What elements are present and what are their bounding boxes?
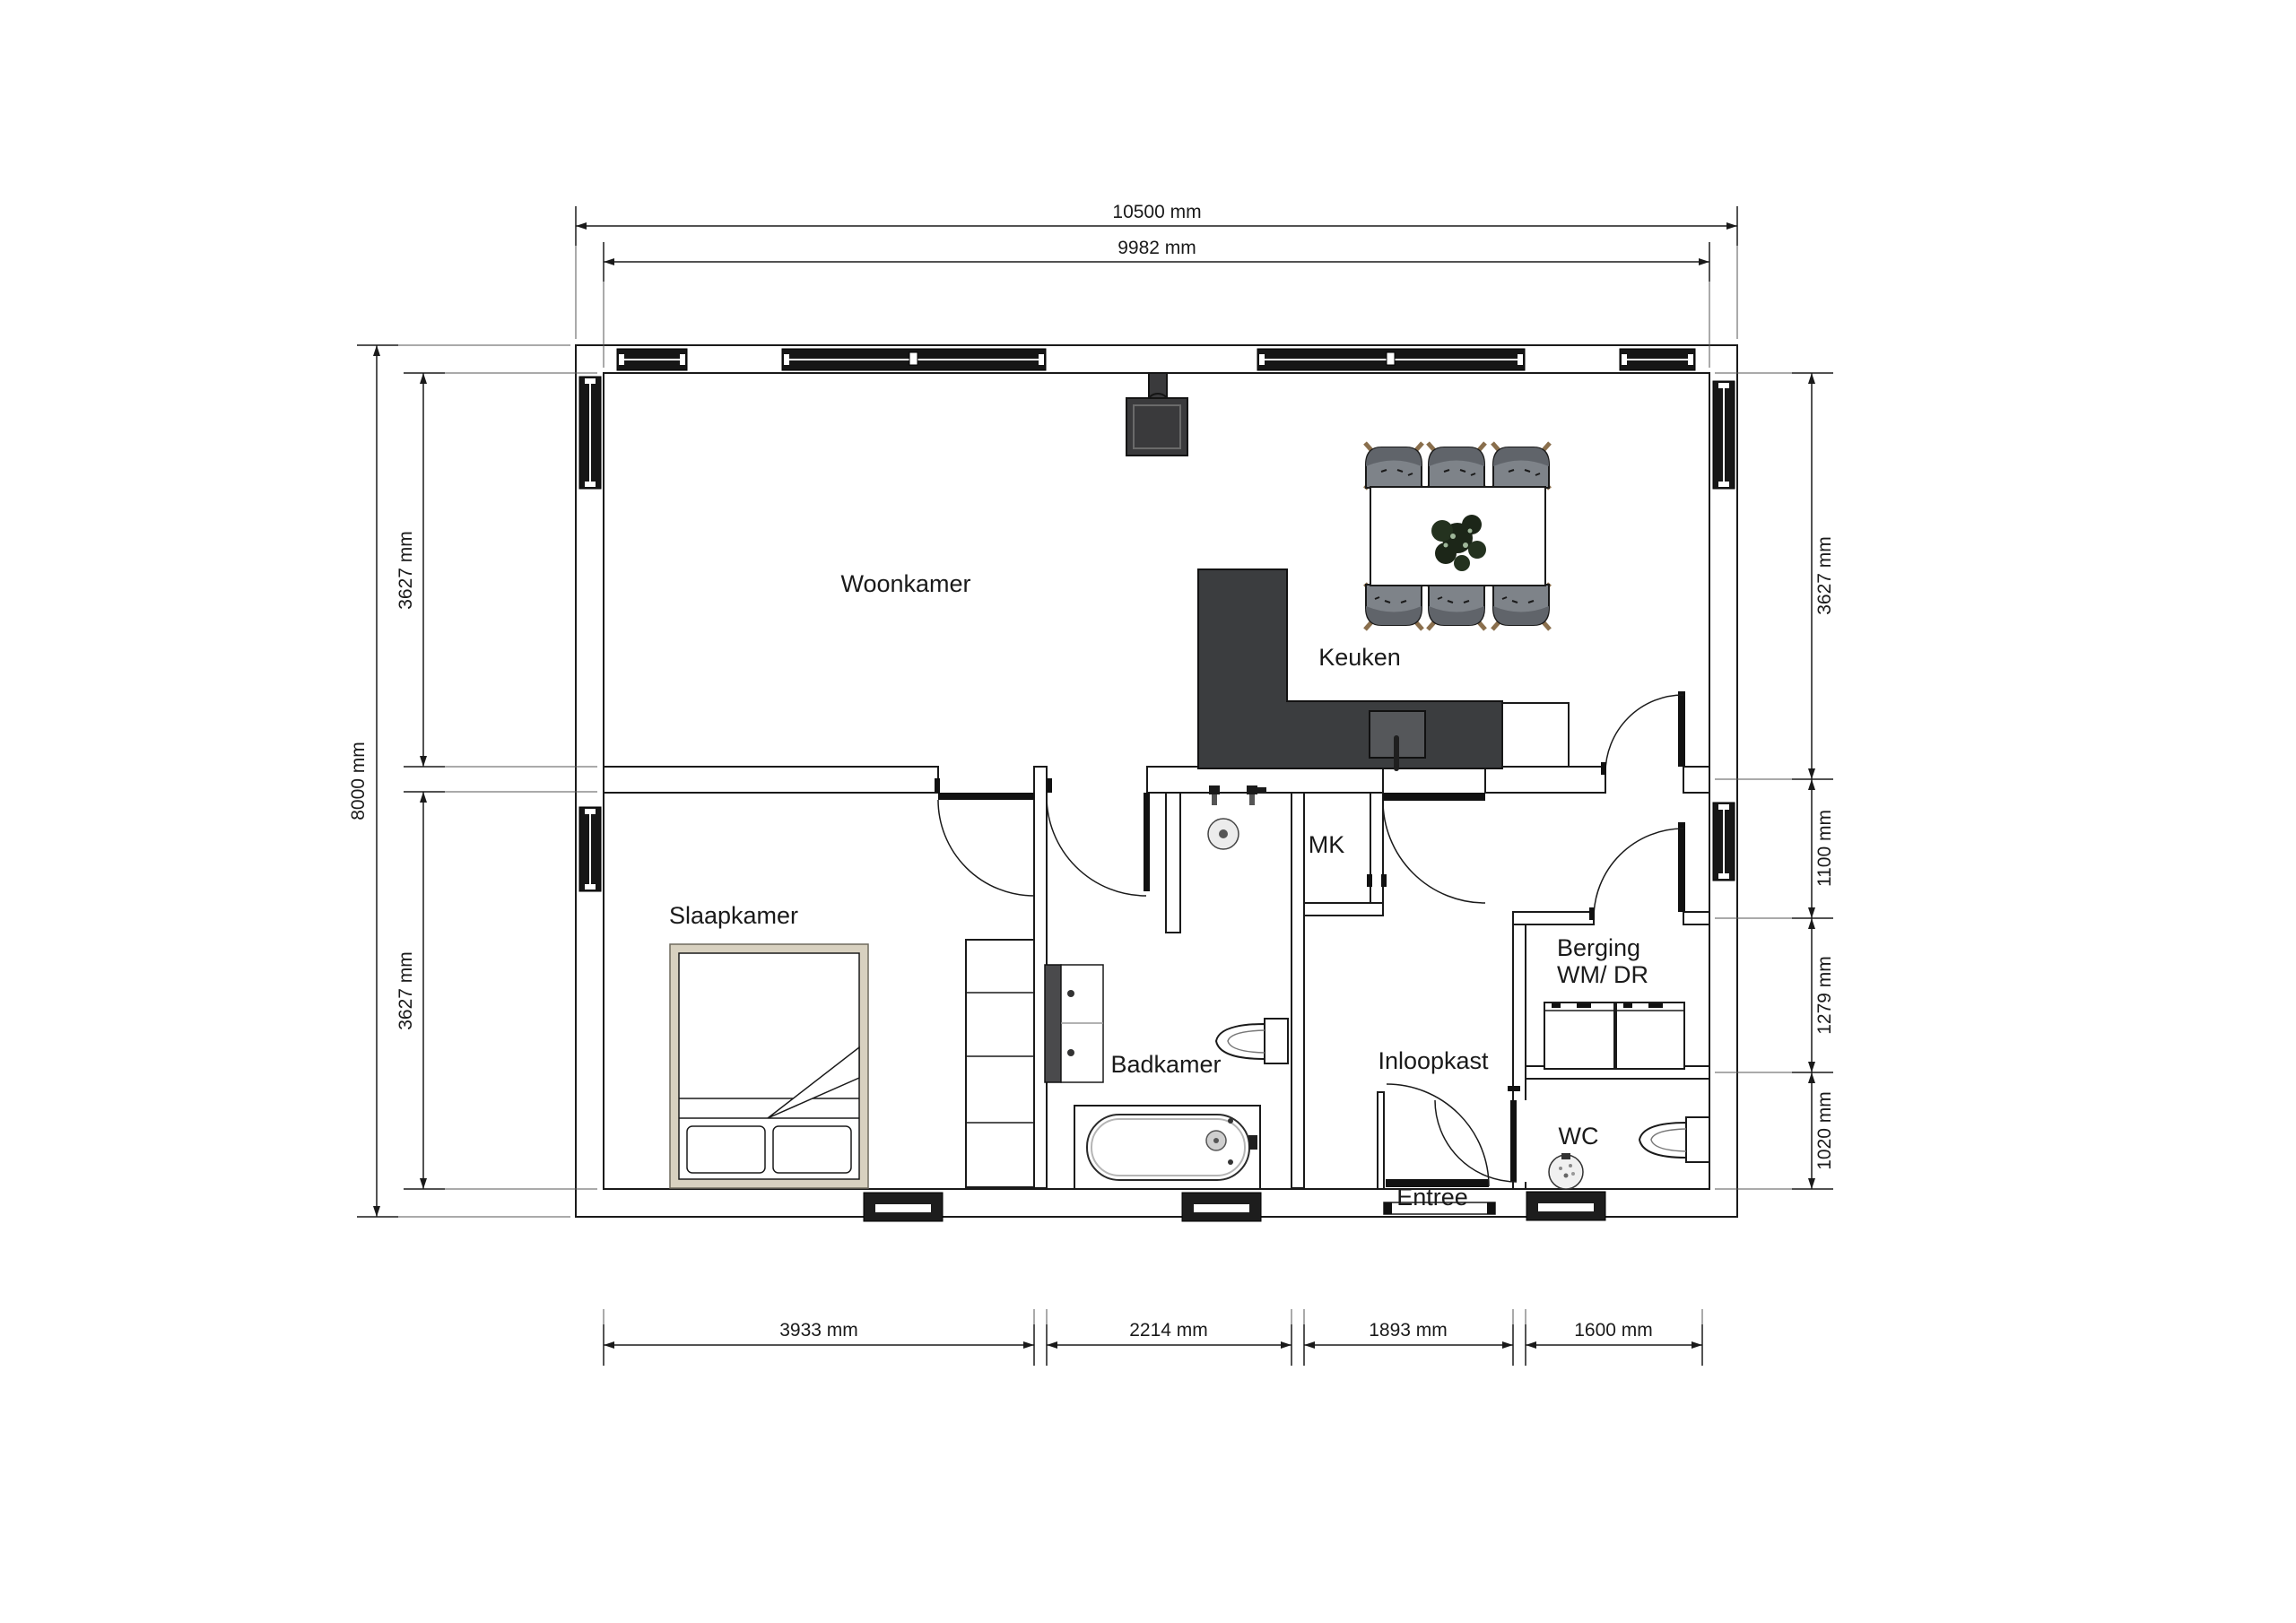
kitchen-faucet-icon xyxy=(1394,735,1399,771)
bathtub xyxy=(1074,1106,1260,1189)
room-label-entree: Entree xyxy=(1396,1184,1468,1211)
dim-bottom-badkamer: 2214 mm xyxy=(1129,1320,1208,1341)
dim-right-upper: 3627 mm xyxy=(1814,536,1835,615)
wall-mk-right xyxy=(1370,793,1383,903)
berging-fixtures xyxy=(1544,1002,1684,1069)
dim-left-lower: 3627 mm xyxy=(396,951,416,1030)
window-top-1 xyxy=(617,349,687,370)
dim-bottom-inloopkast: 1893 mm xyxy=(1369,1320,1448,1341)
window-left-1 xyxy=(579,377,601,489)
dim-top-inner: 9982 mm xyxy=(1118,238,1196,258)
dim-bottom-berging: 1600 mm xyxy=(1574,1320,1653,1341)
mid-wall-right xyxy=(1485,767,1605,793)
room-label-berging-line1: Berging xyxy=(1557,934,1640,961)
bed xyxy=(670,944,868,1188)
room-label-slaapkamer: Slaapkamer xyxy=(669,902,798,929)
window-top-2 xyxy=(782,349,1046,370)
room-label-wc: WC xyxy=(1559,1123,1599,1150)
wall-mk-bottom xyxy=(1304,903,1383,916)
wardrobe xyxy=(966,940,1034,1187)
wall-berging-top-stub xyxy=(1683,912,1709,924)
dim-top-outer: 10500 mm xyxy=(1112,202,1201,222)
room-label-inloopkast: Inloopkast xyxy=(1378,1047,1489,1074)
shower-partition xyxy=(1166,793,1180,933)
window-top-4 xyxy=(1620,349,1695,370)
room-label-badkamer: Badkamer xyxy=(1110,1051,1221,1078)
pillow xyxy=(773,1126,851,1173)
wall-entree-stub xyxy=(1378,1092,1384,1189)
wall-berging-top xyxy=(1513,912,1594,924)
kitchen-cabinet xyxy=(1502,703,1569,767)
room-label-berging-line2: WM/ DR xyxy=(1557,961,1648,988)
mid-wall-left xyxy=(604,767,938,793)
floor-plan-drawing: Woonkamer Keuken Slaapkamer Badkamer MK … xyxy=(0,0,2296,1623)
dim-bottom-slaapkamer: 3933 mm xyxy=(779,1320,858,1341)
dim-right-hall: 1100 mm xyxy=(1814,810,1835,887)
dim-left-total: 8000 mm xyxy=(348,742,369,820)
vanity-double-sink xyxy=(1045,965,1103,1082)
pillow xyxy=(687,1126,765,1173)
room-label-keuken: Keuken xyxy=(1318,644,1401,671)
tub-faucet-icon xyxy=(1248,1135,1257,1150)
window-right-1 xyxy=(1713,381,1735,489)
window-left-2 xyxy=(579,807,601,891)
window-top-3 xyxy=(1257,349,1525,370)
washing-machine xyxy=(1544,1002,1614,1069)
wall-badkamer-inloopkast xyxy=(1291,793,1304,1188)
dryer xyxy=(1616,1002,1684,1069)
dim-right-berging: 1279 mm xyxy=(1814,956,1835,1035)
window-right-2 xyxy=(1713,803,1735,881)
dim-right-wc: 1020 mm xyxy=(1814,1091,1835,1170)
dining-set xyxy=(1365,443,1550,629)
dim-left-upper: 3627 mm xyxy=(396,531,416,610)
room-label-woonkamer: Woonkamer xyxy=(840,570,970,597)
bedroom-fixtures xyxy=(670,940,1034,1188)
shower-drain-icon xyxy=(1208,819,1239,849)
mid-wall-stub xyxy=(1683,767,1709,793)
room-label-mk: MK xyxy=(1309,831,1345,858)
floor-plan-canvas: Woonkamer Keuken Slaapkamer Badkamer MK … xyxy=(0,0,2296,1623)
